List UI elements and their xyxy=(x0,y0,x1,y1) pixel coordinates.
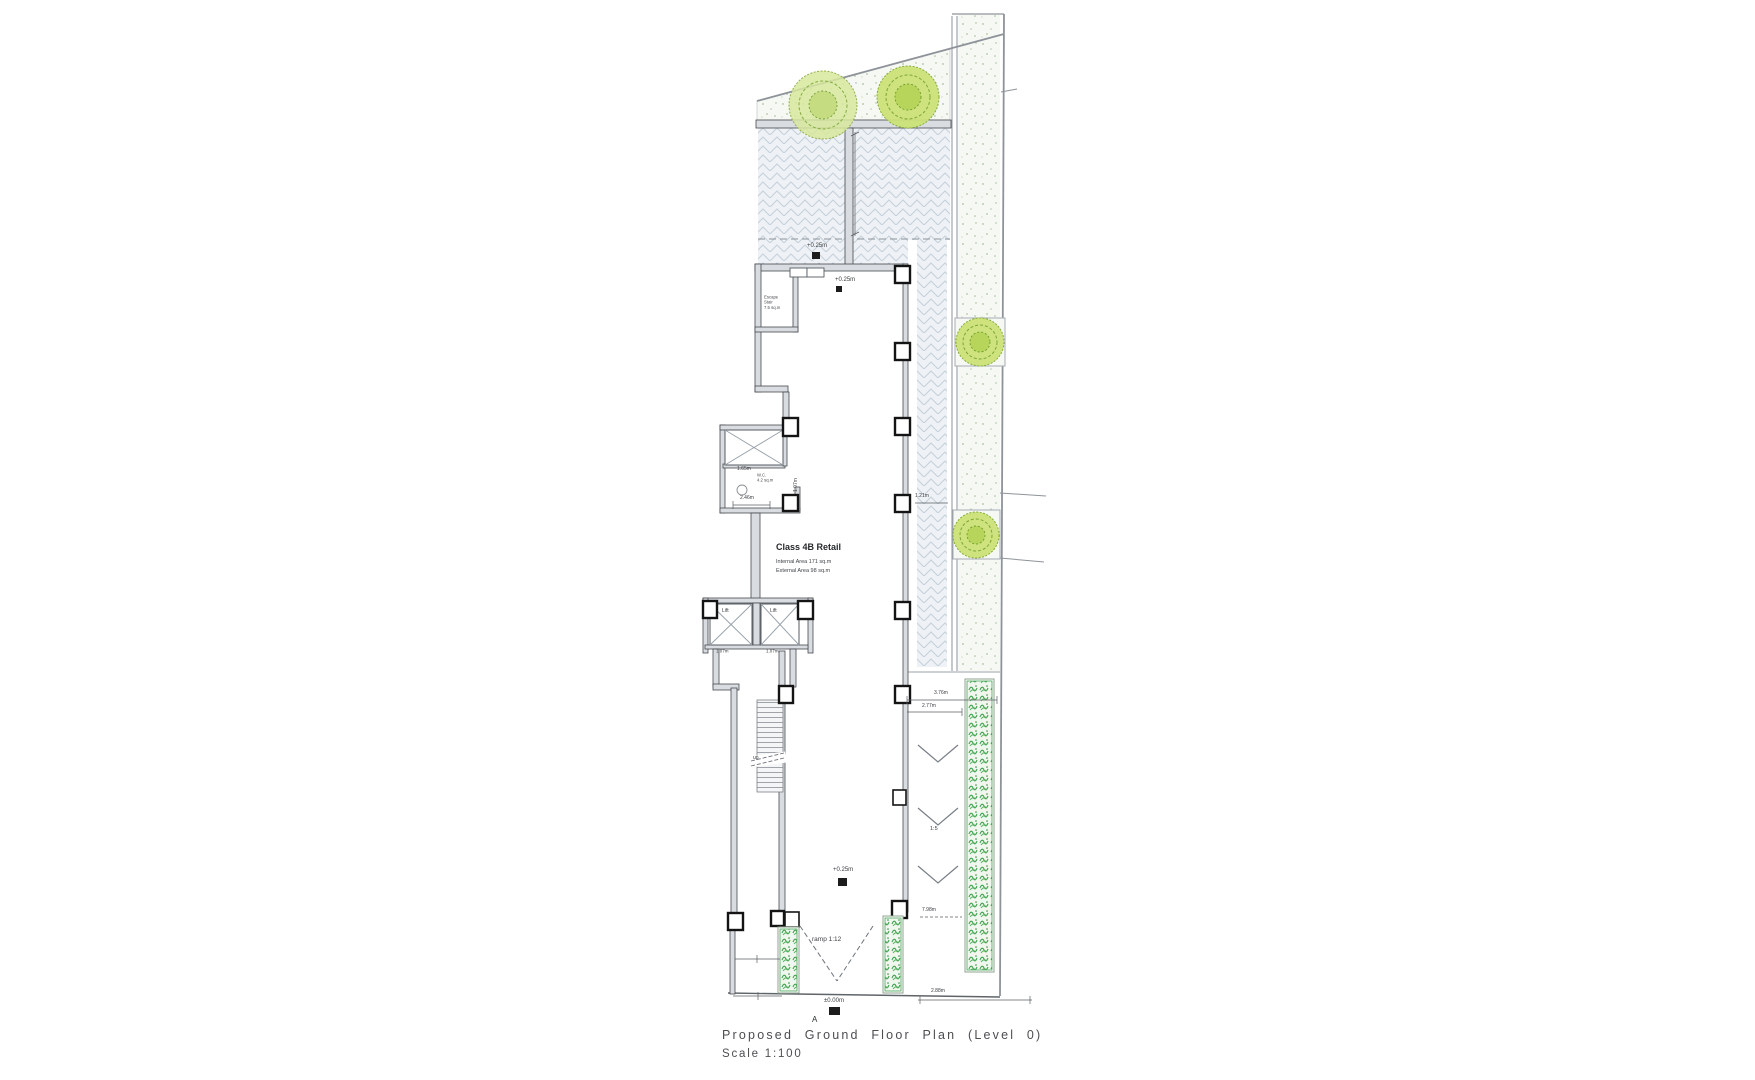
tree-icon xyxy=(789,71,857,139)
drawing-scale: Scale 1:100 xyxy=(722,1048,803,1061)
escape-room-wall xyxy=(755,327,798,332)
hedge-icon xyxy=(885,918,901,991)
dim-lift-left: 1.07m xyxy=(716,650,729,655)
level-label-rear: +0.25m xyxy=(833,867,853,874)
stair-direction-label: up xyxy=(753,756,759,762)
entrance-ramp-label: ramp 1:12 xyxy=(812,936,841,943)
car-ramp-gradient-label: 1:5 xyxy=(930,826,938,832)
wc-line-2: 4.2 sq.m xyxy=(757,479,773,484)
floor-plan-page: +0.25m +0.25m +0.25m ±0.00m Class 4B Ret… xyxy=(0,0,1755,1080)
escape-room-wall xyxy=(793,271,798,332)
lift-right-label: Lift xyxy=(770,609,777,615)
retail-internal-area: Internal Area 171 sq.m xyxy=(776,559,831,565)
level-marker-icon xyxy=(812,252,820,259)
level-label-courtyard: +0.25m xyxy=(807,243,827,250)
corridor-wall xyxy=(731,688,737,930)
level-label-entrance: ±0.00m xyxy=(824,998,844,1005)
ramp-markings xyxy=(800,745,958,981)
dim-forecourt: 7.98m xyxy=(922,908,936,914)
entrance-doors xyxy=(790,268,824,277)
hedge-icon xyxy=(780,929,797,991)
drawing-title: Proposed Ground Floor Plan (Level 0) xyxy=(722,1028,1042,1042)
escape-room-label: Escape Stair 7.5 sq.m xyxy=(764,296,780,311)
ramp-chevron-icon xyxy=(918,866,958,883)
link-wall xyxy=(751,513,760,603)
hedge-icon xyxy=(967,681,992,970)
floor-plan-drawing xyxy=(0,0,1755,1080)
ramp-edge-dashed xyxy=(837,926,873,981)
level-label-threshold: +0.25m xyxy=(835,277,855,284)
retail-unit-title: Class 4B Retail xyxy=(776,542,841,552)
dim-upper-lift: 1.65m xyxy=(737,467,751,473)
level-marker-icon xyxy=(836,286,842,292)
dim-lobby-door: 1.07m xyxy=(794,478,800,492)
dim-site-edge: 2.88m xyxy=(931,989,945,995)
dim-lift-right: 1.07m xyxy=(766,650,779,655)
level-marker-icon xyxy=(829,1007,840,1015)
retail-external-area: External Area 98 sq.m xyxy=(776,568,830,574)
ramp-chevron-icon xyxy=(918,745,958,762)
dim-lobby: 2.46m xyxy=(740,496,754,502)
level-marker-icon xyxy=(838,878,847,886)
wc-room-label: W.C. 4.2 sq.m xyxy=(757,474,773,484)
ramp-chevron-icon xyxy=(918,808,958,825)
level-markers xyxy=(812,252,847,1015)
walkway-paving xyxy=(917,128,947,667)
lift-left-label: Lift xyxy=(722,609,729,615)
escape-line-3: 7.5 sq.m xyxy=(764,306,780,311)
tree-icon xyxy=(956,318,1004,366)
tree-icon xyxy=(953,512,999,558)
dim-walkway: 1.21m xyxy=(915,494,929,500)
tree-icon xyxy=(877,66,939,128)
ramp-edge-dashed xyxy=(800,926,837,981)
hedge-planters xyxy=(778,679,994,993)
dim-car-ramp-a: 3.76m xyxy=(934,691,948,697)
wc-fixture-icon xyxy=(737,485,747,495)
stair xyxy=(749,700,786,792)
dim-car-ramp-b: 2.77m xyxy=(922,704,936,710)
section-marker: A xyxy=(812,1015,817,1024)
